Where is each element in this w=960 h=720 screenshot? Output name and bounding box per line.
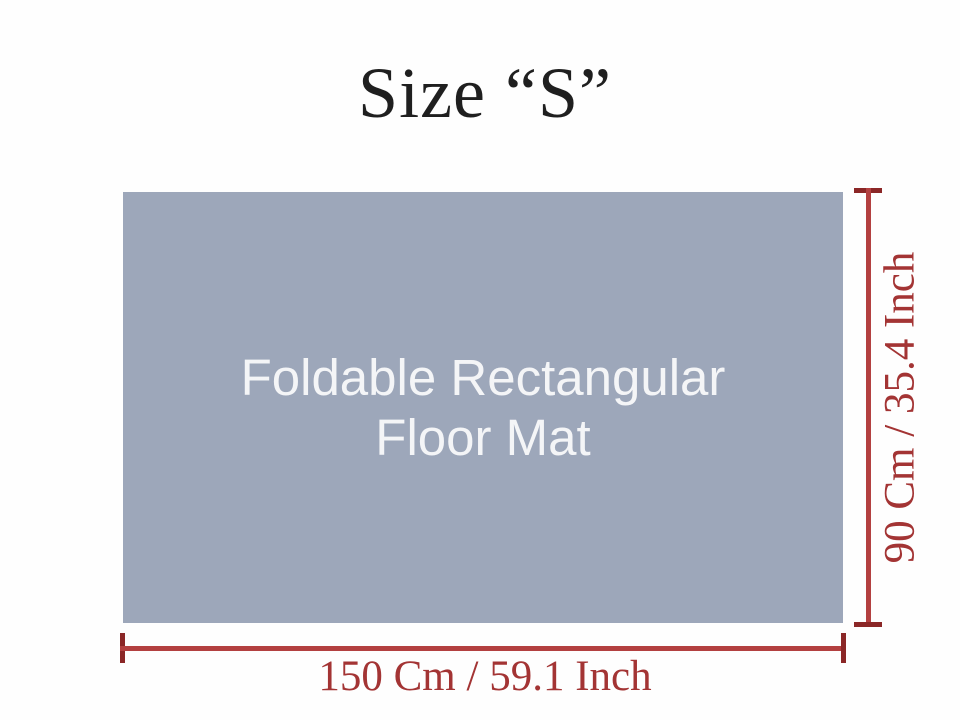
- height-dimension-cap-bottom: [854, 622, 882, 627]
- width-dimension-line: [120, 646, 846, 651]
- height-dimension-line: [866, 188, 871, 627]
- mat-label-line1: Foldable Rectangular: [241, 348, 726, 407]
- mat-label-line2: Floor Mat: [375, 408, 590, 467]
- page-title: Size “S”: [5, 57, 960, 129]
- width-dimension-label: 150 Cm / 59.1 Inch: [165, 655, 805, 698]
- width-dimension-cap-right: [841, 633, 846, 663]
- height-dimension-label: 90 Cm / 35.4 Inch: [879, 236, 922, 580]
- size-diagram: Size “S” Foldable Rectangular Floor Mat …: [0, 0, 960, 720]
- floor-mat-rectangle: Foldable Rectangular Floor Mat: [123, 192, 843, 623]
